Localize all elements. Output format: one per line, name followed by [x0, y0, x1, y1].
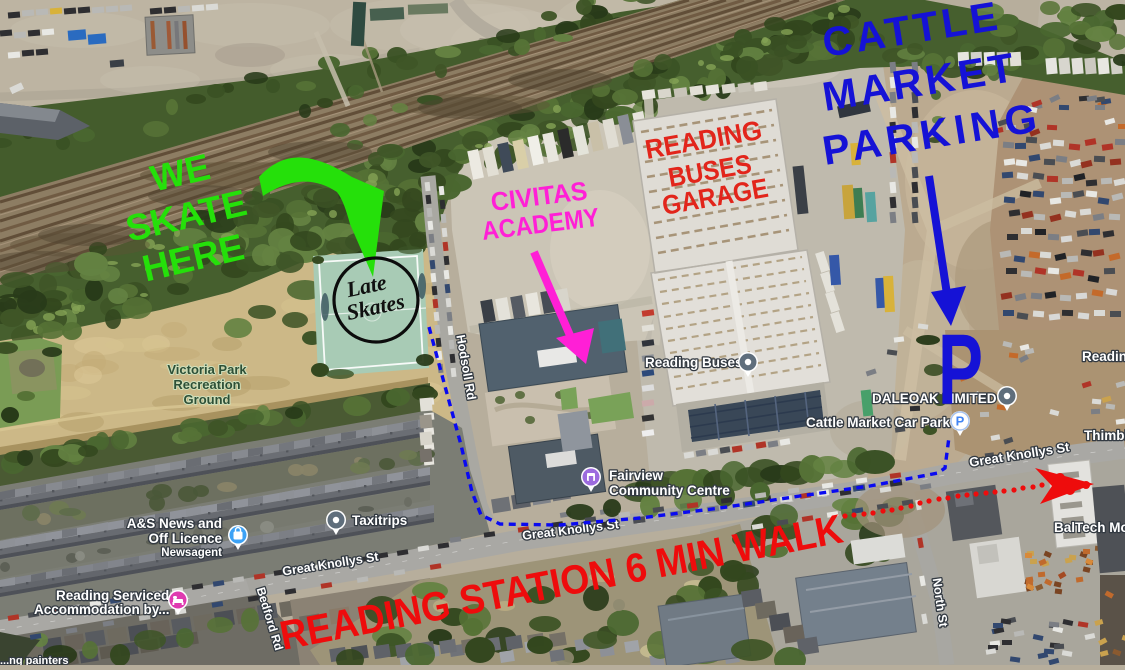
svg-text:Recreation: Recreation	[173, 377, 240, 392]
svg-text:Ground: Ground	[184, 392, 231, 407]
svg-text:Reading Serviced: Reading Serviced	[56, 588, 169, 603]
svg-text:A&S News and: A&S News and	[127, 516, 222, 531]
svg-text:Accommodation by...: Accommodation by...	[34, 602, 170, 617]
svg-text:Thimble: Thimble	[1084, 428, 1125, 443]
svg-text:Reading Buses: Reading Buses	[645, 355, 743, 370]
svg-text:Fairview: Fairview	[609, 468, 664, 483]
svg-text:Cattle Market Car Park: Cattle Market Car Park	[806, 415, 951, 430]
svg-text:Reading: Reading	[1082, 349, 1125, 364]
svg-text:P: P	[938, 314, 983, 426]
svg-text:Taxitrips: Taxitrips	[352, 513, 407, 528]
svg-text:Newsagent: Newsagent	[161, 547, 222, 559]
svg-text:Victoria Park: Victoria Park	[167, 362, 247, 377]
svg-text:Community Centre: Community Centre	[609, 483, 730, 498]
svg-text:Off Licence: Off Licence	[148, 531, 222, 546]
svg-text:...ng painters: ...ng painters	[0, 655, 68, 665]
svg-text:BalTech Mo: BalTech Mo	[1054, 520, 1125, 535]
